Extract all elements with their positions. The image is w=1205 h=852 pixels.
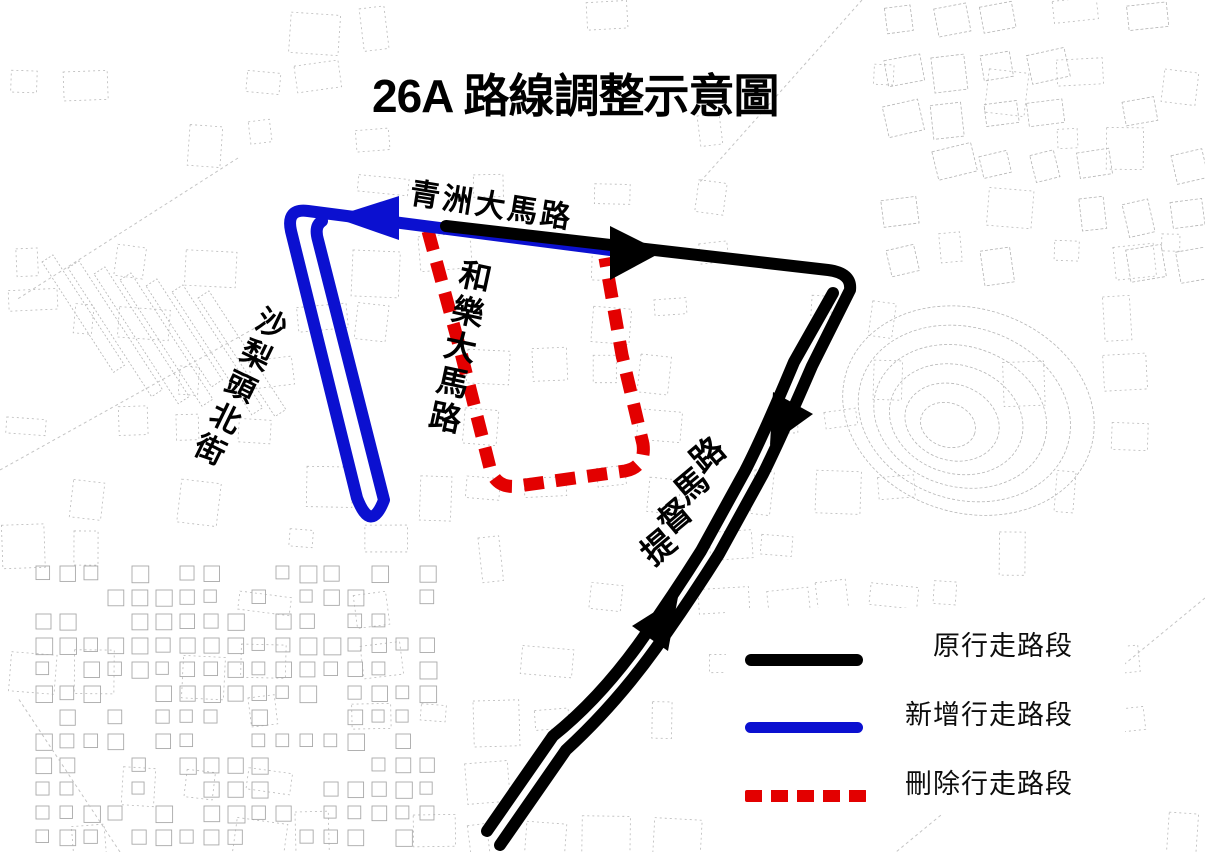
- legend-label-removed: 刪除行走路段: [905, 762, 1073, 801]
- street-label-char: 樂: [449, 293, 487, 331]
- page-title: 26A 路線調整示意圖: [372, 60, 778, 126]
- street-label-char: 洲: [440, 173, 477, 221]
- legend: 原行走路段 新增行走路段 刪除行走路段: [726, 608, 1125, 814]
- street-label-char: 馬: [434, 364, 472, 402]
- legend-label-original: 原行走路段: [933, 624, 1073, 663]
- legend-item-original: 原行走路段: [726, 624, 1125, 684]
- legend-swatch-removed-line: [745, 790, 867, 802]
- street-label-char: 大: [472, 178, 509, 226]
- legend-label-new: 新增行走路段: [905, 693, 1073, 732]
- legend-item-new: 新增行走路段: [726, 693, 1125, 753]
- street-label-char: 大: [441, 328, 479, 366]
- legend-swatch-new-line: [745, 722, 863, 733]
- street-label-char: 路: [426, 399, 464, 437]
- route-adjustment-map: 26A 路線調整示意圖 青洲大馬路 和樂大馬路 沙梨頭北街 提督馬路 原行走路段…: [0, 0, 1205, 852]
- legend-item-removed: 刪除行走路段: [726, 762, 1125, 822]
- street-label-char: 和: [456, 258, 494, 296]
- street-label-char: 馬: [505, 183, 542, 231]
- legend-swatch-original-line: [745, 654, 863, 666]
- street-label-char: 青: [407, 168, 444, 216]
